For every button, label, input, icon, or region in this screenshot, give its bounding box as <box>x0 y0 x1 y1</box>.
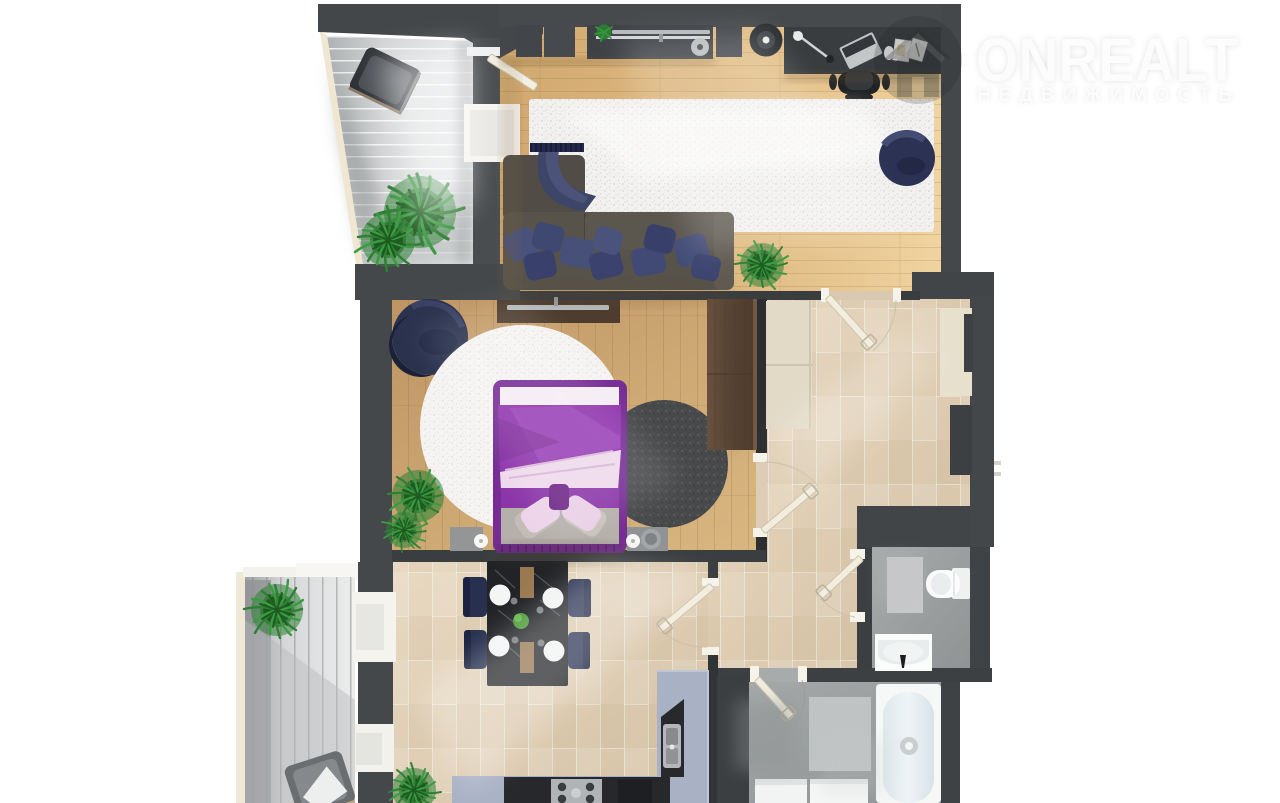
svg-text:НЕДВИЖИМОСТЬ: НЕДВИЖИМОСТЬ <box>977 85 1241 106</box>
svg-text:ONREALT: ONREALT <box>976 26 1239 94</box>
